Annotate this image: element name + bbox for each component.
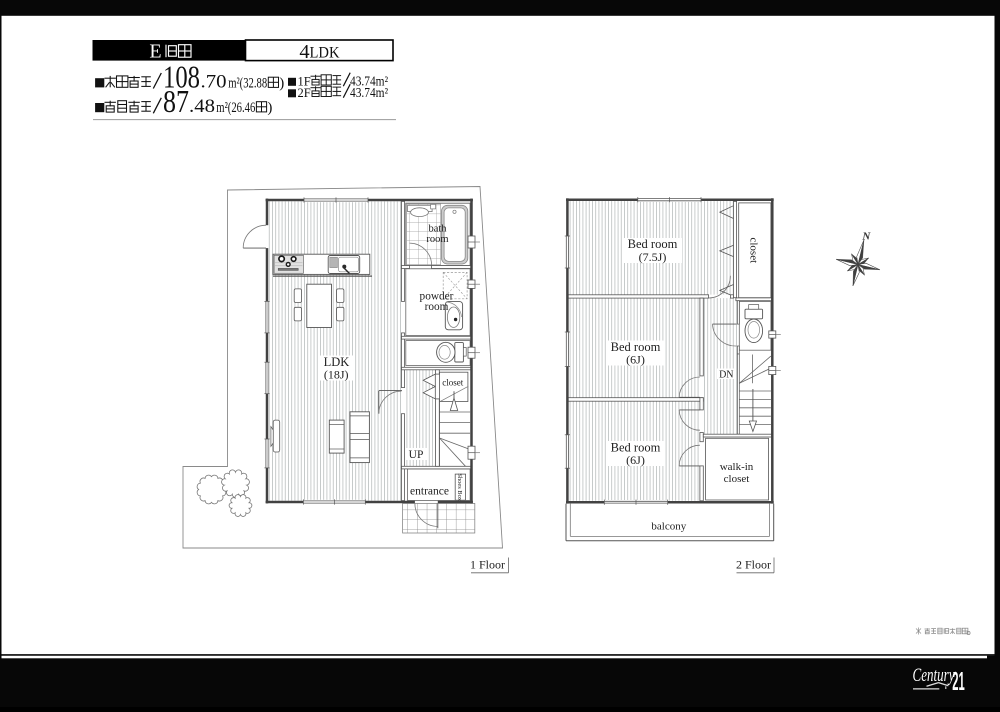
svg-text:Century: Century bbox=[913, 665, 955, 686]
svg-text:87: 87 bbox=[163, 84, 189, 119]
svg-text:m²(26.46: m²(26.46 bbox=[216, 100, 255, 116]
svg-text:.70: .70 bbox=[201, 72, 227, 93]
svg-text:(6J): (6J) bbox=[626, 352, 645, 366]
svg-text:bath: bath bbox=[428, 224, 447, 235]
svg-text:.48: .48 bbox=[189, 96, 215, 117]
svg-text:balcony: balcony bbox=[651, 521, 686, 533]
svg-text:2 Floor: 2 Floor bbox=[736, 558, 771, 572]
svg-text:(18J): (18J) bbox=[324, 368, 349, 382]
svg-text:m²(32.88: m²(32.88 bbox=[228, 76, 267, 92]
svg-text:Shoes Box: Shoes Box bbox=[456, 473, 463, 501]
svg-text:entrance: entrance bbox=[410, 485, 449, 497]
svg-text:UP: UP bbox=[409, 449, 424, 461]
svg-text:2F: 2F bbox=[298, 86, 311, 100]
svg-text:DN: DN bbox=[719, 369, 733, 380]
svg-text:1 Floor: 1 Floor bbox=[470, 558, 505, 572]
svg-text:43.74m²: 43.74m² bbox=[350, 85, 388, 100]
svg-text:): ) bbox=[267, 100, 272, 116]
svg-text:room: room bbox=[426, 234, 448, 245]
svg-text:N: N bbox=[861, 230, 871, 242]
svg-text:(7.5J): (7.5J) bbox=[639, 250, 667, 264]
svg-text:walk-in: walk-in bbox=[720, 461, 754, 473]
svg-text:LDK: LDK bbox=[310, 44, 340, 61]
svg-text:room: room bbox=[425, 301, 449, 313]
svg-text:21: 21 bbox=[952, 666, 965, 696]
svg-text:): ) bbox=[279, 76, 284, 92]
svg-text:(6J): (6J) bbox=[626, 453, 645, 467]
svg-text:4: 4 bbox=[299, 41, 309, 63]
svg-text:closet: closet bbox=[748, 237, 760, 263]
svg-text:closet: closet bbox=[442, 378, 463, 388]
svg-text:closet: closet bbox=[724, 473, 750, 485]
svg-text:E: E bbox=[149, 41, 161, 63]
